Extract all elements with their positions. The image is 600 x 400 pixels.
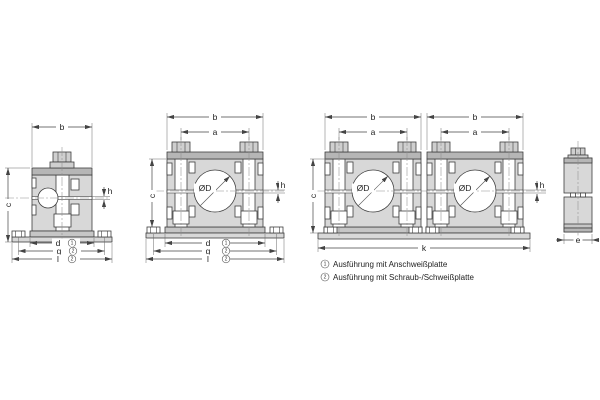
drawing-canvas: b c h d 1 g 2 l 2 bbox=[0, 0, 600, 400]
weld-plate bbox=[426, 227, 524, 233]
screw-block bbox=[270, 227, 283, 233]
nut bbox=[54, 214, 71, 227]
weld-plate bbox=[165, 227, 265, 233]
dim-label-b: b bbox=[371, 112, 376, 122]
dim-label-a: a bbox=[473, 127, 478, 137]
interlock-tab bbox=[571, 193, 576, 197]
weld-plate bbox=[324, 227, 422, 233]
dim-label-l: l bbox=[207, 254, 209, 264]
dim-label-b: b bbox=[473, 112, 478, 122]
edge-slot bbox=[32, 205, 36, 215]
recess bbox=[71, 179, 79, 190]
screw-block bbox=[98, 231, 111, 237]
dim-label-h: h bbox=[108, 186, 113, 196]
marker-2: 2 bbox=[225, 256, 228, 262]
screw-block bbox=[409, 227, 422, 233]
dimensions-view4: e bbox=[556, 234, 599, 245]
dim-label-a: a bbox=[371, 127, 376, 137]
dim-label-e: e bbox=[576, 235, 581, 245]
dim-label-h: h bbox=[281, 180, 286, 190]
dim-label-b: b bbox=[60, 122, 65, 132]
marker-1: 1 bbox=[225, 240, 228, 246]
dim-label-b: b bbox=[213, 112, 218, 122]
view-single-clamp-side: b c h d 1 g 2 l 2 bbox=[3, 122, 115, 264]
legend-text-1: Ausführung mit Anschweißplatte bbox=[333, 260, 448, 269]
screw-block bbox=[511, 227, 524, 233]
dim-label-diameter: ØD bbox=[199, 183, 212, 193]
pipe-clamp-technical-drawing: b c h d 1 g 2 l 2 bbox=[0, 0, 600, 400]
dim-label-diameter: ØD bbox=[459, 183, 472, 193]
interlock-tab bbox=[581, 193, 586, 197]
screw-weld-plate bbox=[146, 233, 284, 238]
mounting-rail bbox=[318, 233, 530, 239]
marker-1: 1 bbox=[71, 240, 74, 246]
view-side-profile: e bbox=[556, 141, 599, 245]
legend-text-2: Ausführung mit Schraub-/Schweißplatte bbox=[333, 273, 475, 282]
screw-block bbox=[12, 231, 25, 237]
view-twin-clamp-front: ØD ØD b b a a c h bbox=[308, 112, 547, 253]
screw-block bbox=[147, 227, 160, 233]
screw-block bbox=[426, 227, 439, 233]
view-single-clamp-front: ØD b a c h d 1 g 2 bbox=[146, 112, 288, 264]
marker-2: 2 bbox=[72, 248, 75, 254]
edge-slot bbox=[32, 178, 36, 188]
dim-label-a: a bbox=[213, 127, 218, 137]
dim-label-diameter: ØD bbox=[357, 183, 370, 193]
legend-marker-2: 2 bbox=[324, 274, 327, 280]
screw-block bbox=[324, 227, 337, 233]
legend: 1 Ausführung mit Anschweißplatte 2 Ausfü… bbox=[321, 260, 475, 282]
legend-marker-1: 1 bbox=[324, 261, 327, 267]
marker-2: 2 bbox=[71, 256, 74, 262]
dim-label-l: l bbox=[57, 254, 59, 264]
dim-label-h: h bbox=[540, 180, 545, 190]
marker-2: 2 bbox=[225, 248, 228, 254]
recess bbox=[71, 204, 79, 215]
